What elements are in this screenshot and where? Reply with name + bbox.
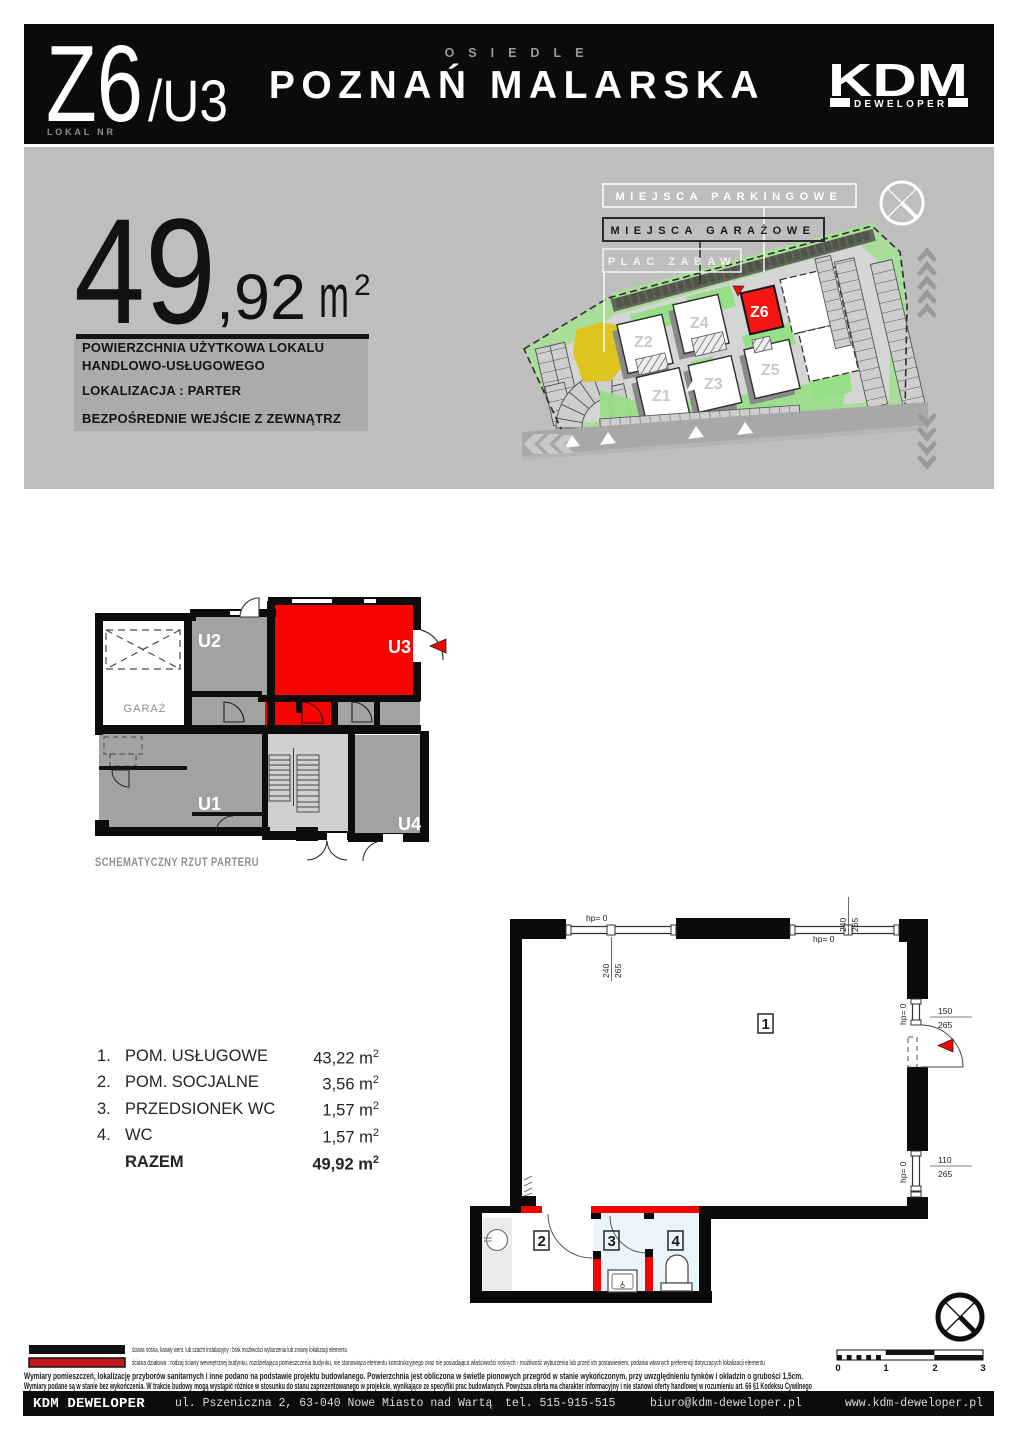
svg-text:Z6: Z6 [750, 304, 769, 321]
svg-text:Z2: Z2 [634, 334, 653, 351]
svg-text:ściana nośna, kanały went. lu: ściana nośna, kanały went. lub szacht in… [132, 1347, 347, 1354]
svg-text:Z3: Z3 [704, 376, 723, 393]
svg-text:265: 265 [938, 1169, 952, 1179]
svg-text:hp= 0: hp= 0 [898, 1161, 908, 1183]
svg-text:U4: U4 [398, 814, 421, 834]
svg-text:110: 110 [938, 1155, 952, 1165]
svg-text:265: 265 [850, 918, 860, 932]
svg-text:2: 2 [538, 1233, 546, 1250]
svg-text:Z4: Z4 [690, 315, 709, 332]
svg-text:MIEJSCA PARKINGOWE: MIEJSCA PARKINGOWE [616, 191, 843, 203]
svg-text:U1: U1 [198, 794, 221, 814]
svg-text:hp= 0: hp= 0 [813, 934, 835, 944]
svg-text:0: 0 [835, 1363, 840, 1374]
svg-text:MIEJSCA GARAŻOWE: MIEJSCA GARAŻOWE [611, 224, 816, 237]
svg-text:U2: U2 [198, 631, 221, 651]
svg-text:Wymiary pomieszczeń, lokalizac: Wymiary pomieszczeń, lokalizację przybor… [24, 1371, 803, 1381]
svg-text:1: 1 [762, 1016, 770, 1033]
svg-text:150: 150 [938, 1006, 952, 1016]
svg-text:Z5: Z5 [761, 362, 780, 379]
svg-text:Z1: Z1 [652, 388, 671, 405]
svg-text:U3: U3 [388, 637, 411, 657]
svg-text:240: 240 [838, 918, 848, 932]
svg-text:2: 2 [932, 1363, 937, 1374]
svg-text:1: 1 [883, 1363, 889, 1374]
svg-text:Wymiary podane są w stanie bez: Wymiary podane są w stanie bez wykończen… [24, 1381, 812, 1391]
svg-text:SCHEMATYCZNY RZUT PARTERU: SCHEMATYCZNY RZUT PARTERU [95, 855, 259, 869]
svg-text:3: 3 [980, 1363, 985, 1374]
svg-text:GARAŻ: GARAŻ [124, 702, 167, 715]
svg-text:265: 265 [613, 964, 623, 978]
svg-text:3: 3 [608, 1233, 616, 1250]
svg-text:265: 265 [938, 1020, 952, 1030]
svg-text:hp= 0: hp= 0 [586, 913, 608, 923]
svg-text:240: 240 [601, 964, 611, 978]
svg-text:ściana działowa : rodzaj ścian: ściana działowa : rodzaj ściany wewnętrz… [132, 1360, 765, 1367]
svg-text:hp= 0: hp= 0 [898, 1003, 908, 1025]
svg-text:4: 4 [672, 1233, 681, 1250]
svg-text:PLAC ZABAW: PLAC ZABAW [608, 256, 736, 268]
